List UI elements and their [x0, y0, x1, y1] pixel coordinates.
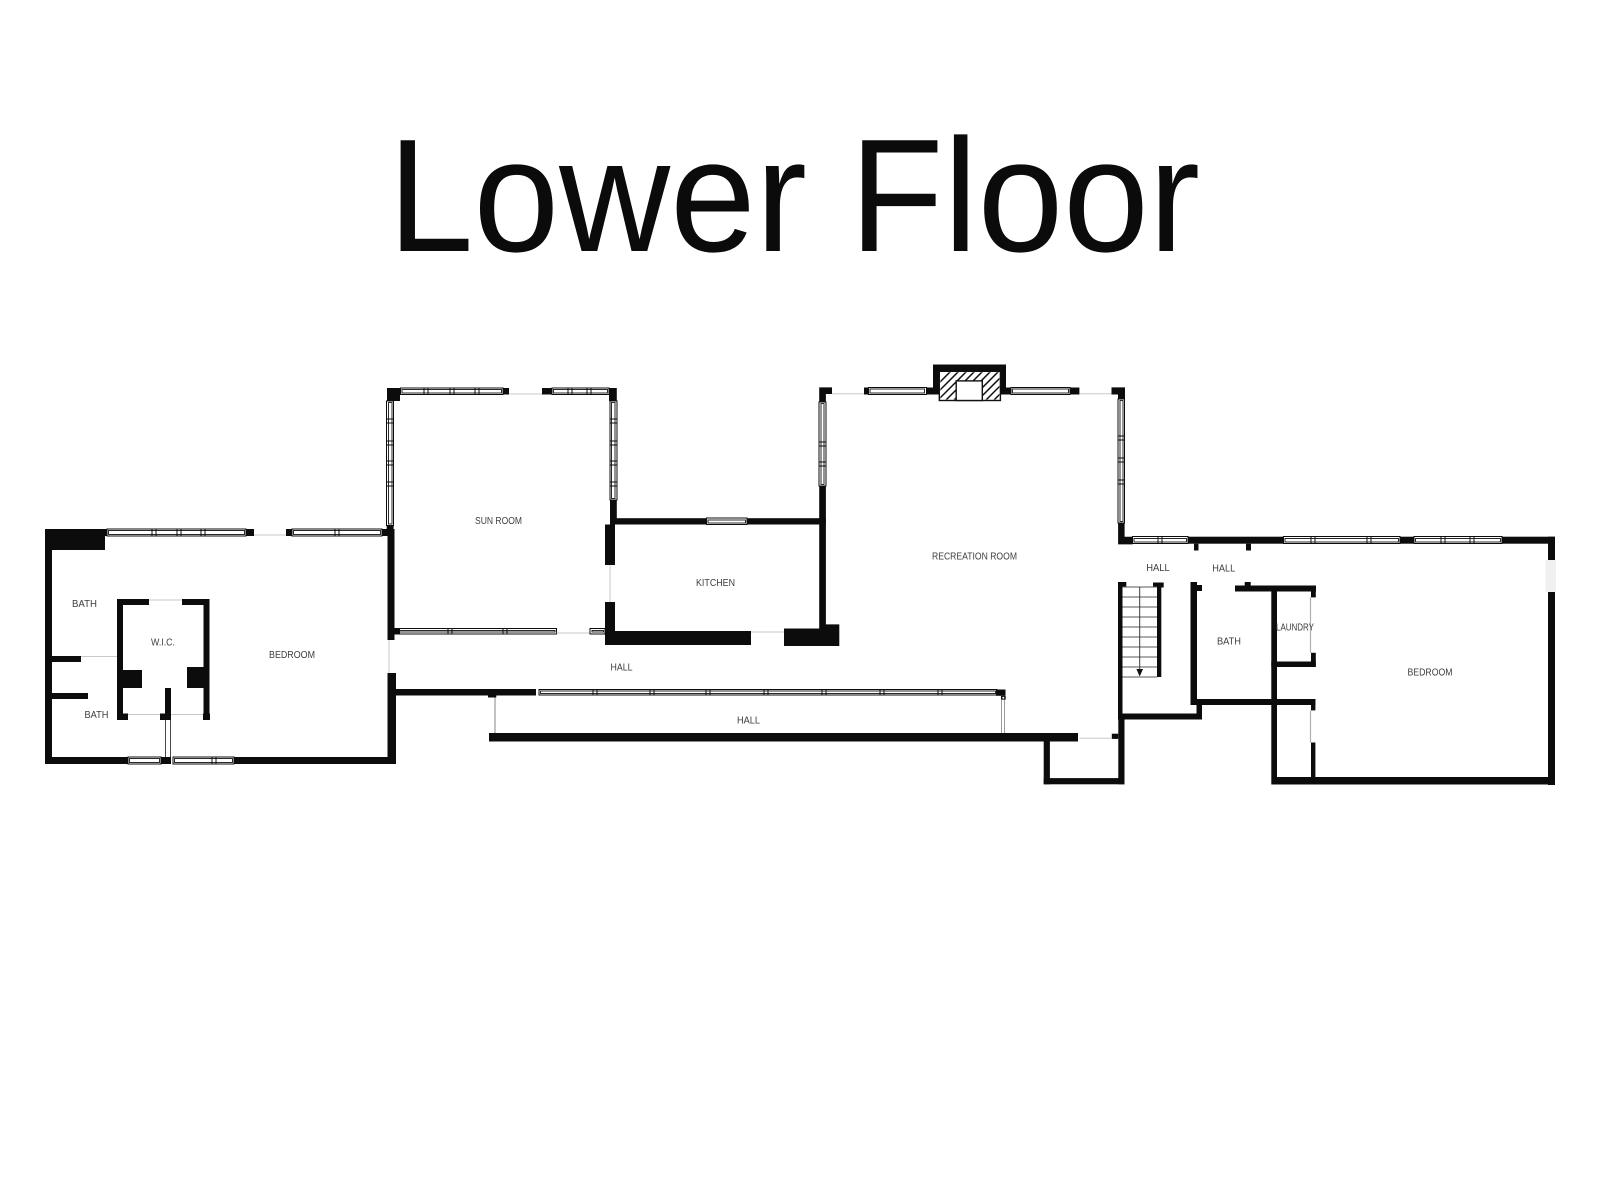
svg-text:LAUNDRY: LAUNDRY: [1276, 623, 1314, 634]
svg-text:HALL: HALL: [1146, 563, 1170, 574]
svg-text:HALL: HALL: [737, 716, 760, 727]
svg-text:SUN ROOM: SUN ROOM: [475, 516, 522, 527]
svg-text:HALL: HALL: [1212, 564, 1235, 575]
svg-text:BEDROOM: BEDROOM: [269, 650, 315, 661]
svg-text:HALL: HALL: [611, 663, 633, 674]
svg-text:BATH: BATH: [72, 599, 97, 610]
svg-text:BATH: BATH: [85, 710, 109, 721]
svg-text:Lower Floor: Lower Floor: [388, 106, 1200, 286]
svg-text:W.I.C.: W.I.C.: [151, 638, 175, 649]
svg-text:BATH: BATH: [1217, 637, 1241, 648]
svg-text:KITCHEN: KITCHEN: [696, 578, 735, 589]
svg-text:BEDROOM: BEDROOM: [1408, 668, 1453, 679]
svg-text:RECREATION ROOM: RECREATION ROOM: [932, 552, 1017, 563]
